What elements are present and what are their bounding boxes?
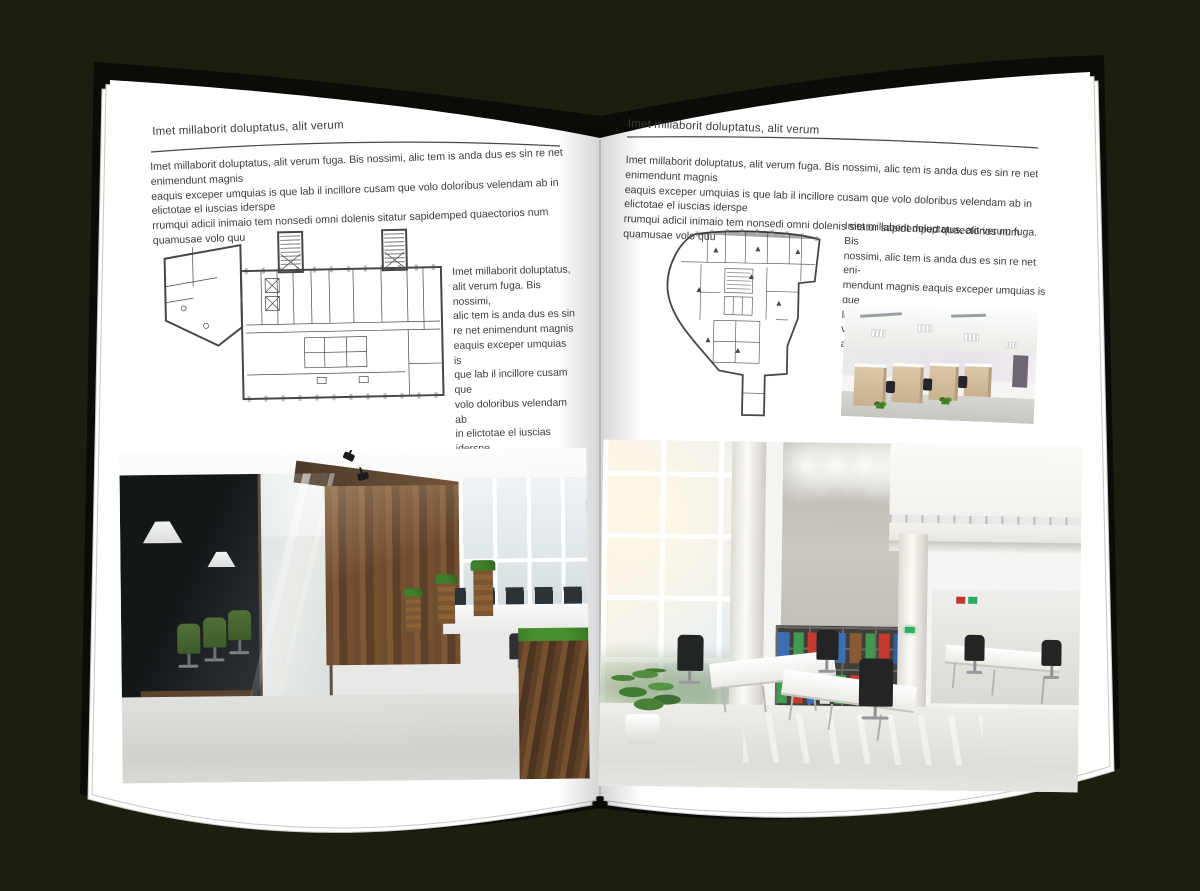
desk-plant — [876, 402, 884, 408]
ceiling-vent — [951, 313, 986, 317]
office-chair — [886, 381, 895, 393]
polished-floor — [599, 703, 1079, 793]
photo-left-office-interior — [119, 448, 589, 784]
dark-meeting-room — [120, 474, 263, 707]
office-chair — [958, 376, 967, 388]
black-mesh-chair — [677, 634, 704, 670]
desk-plant — [942, 398, 950, 404]
light-panel — [964, 333, 979, 342]
office-chair — [923, 378, 932, 390]
light-panel — [871, 329, 886, 338]
light-panel — [1005, 341, 1017, 348]
white-column — [897, 534, 928, 707]
magazine-spread-mockup: Imet millaborit doluptatus, alit verum I… — [0, 0, 1200, 891]
wood-planter — [406, 595, 421, 631]
black-mesh-chair — [858, 658, 893, 706]
floor-plan-right — [646, 221, 840, 425]
concrete-feature-wall — [780, 442, 905, 627]
wood-planter — [437, 582, 455, 624]
light-panel — [918, 324, 933, 333]
exit-sign — [905, 627, 915, 633]
black-mesh-chair — [964, 635, 984, 661]
cubicle-cabinet — [928, 362, 958, 400]
photo-right-office-interior — [599, 440, 1083, 793]
glass-partition — [257, 473, 333, 719]
green-office-chair — [177, 624, 200, 654]
photo-small-cubicle-office — [841, 303, 1039, 424]
back-door — [1012, 355, 1029, 387]
green-office-chair — [203, 617, 226, 647]
cubicle-cabinet — [963, 363, 991, 398]
right-header-rule — [626, 133, 1040, 151]
potted-plant-leaves — [633, 698, 663, 710]
cubicle-cabinet — [853, 364, 888, 407]
pendant-lamp — [142, 521, 182, 543]
green-office-chair — [228, 610, 251, 640]
room-markers — [695, 245, 800, 354]
plant-pot — [626, 714, 660, 744]
black-mesh-chair — [1041, 640, 1061, 666]
large-wood-planter — [518, 639, 589, 779]
cubicle-cabinet — [892, 363, 924, 403]
black-mesh-chair — [816, 629, 838, 659]
pendant-lamp — [208, 552, 236, 568]
first-aid-sign — [956, 597, 965, 604]
wood-planter — [473, 569, 493, 616]
aed-sign — [968, 597, 977, 604]
floor-plan-left — [152, 223, 458, 413]
